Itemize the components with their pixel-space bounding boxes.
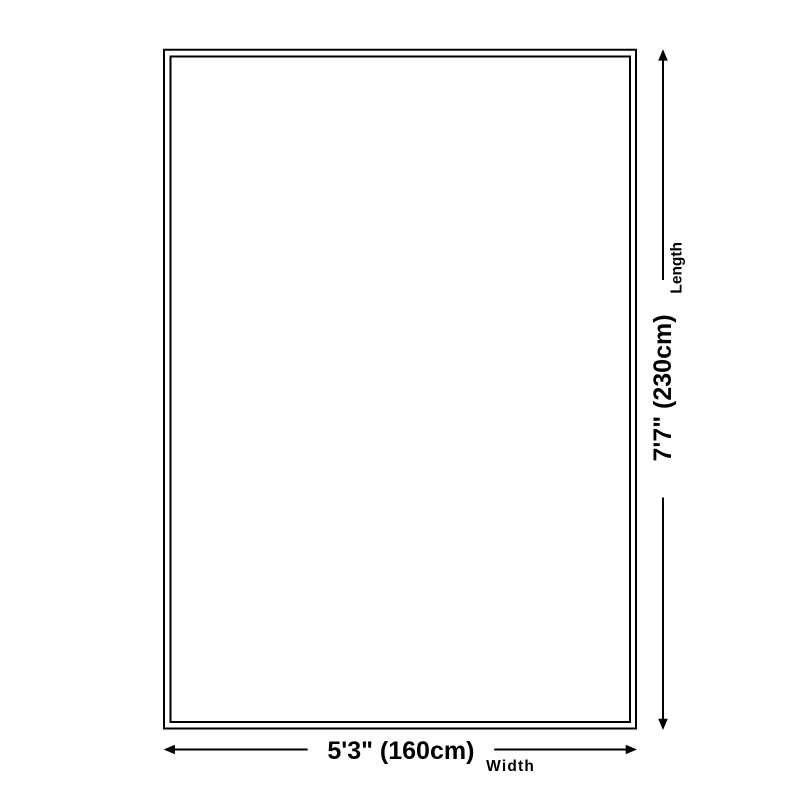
svg-text:7'7" (230cm): 7'7" (230cm) <box>649 314 677 461</box>
svg-text:Width: Width <box>486 758 535 775</box>
svg-text:Length: Length <box>668 242 685 294</box>
svg-text:5'3" (160cm): 5'3" (160cm) <box>327 737 474 765</box>
